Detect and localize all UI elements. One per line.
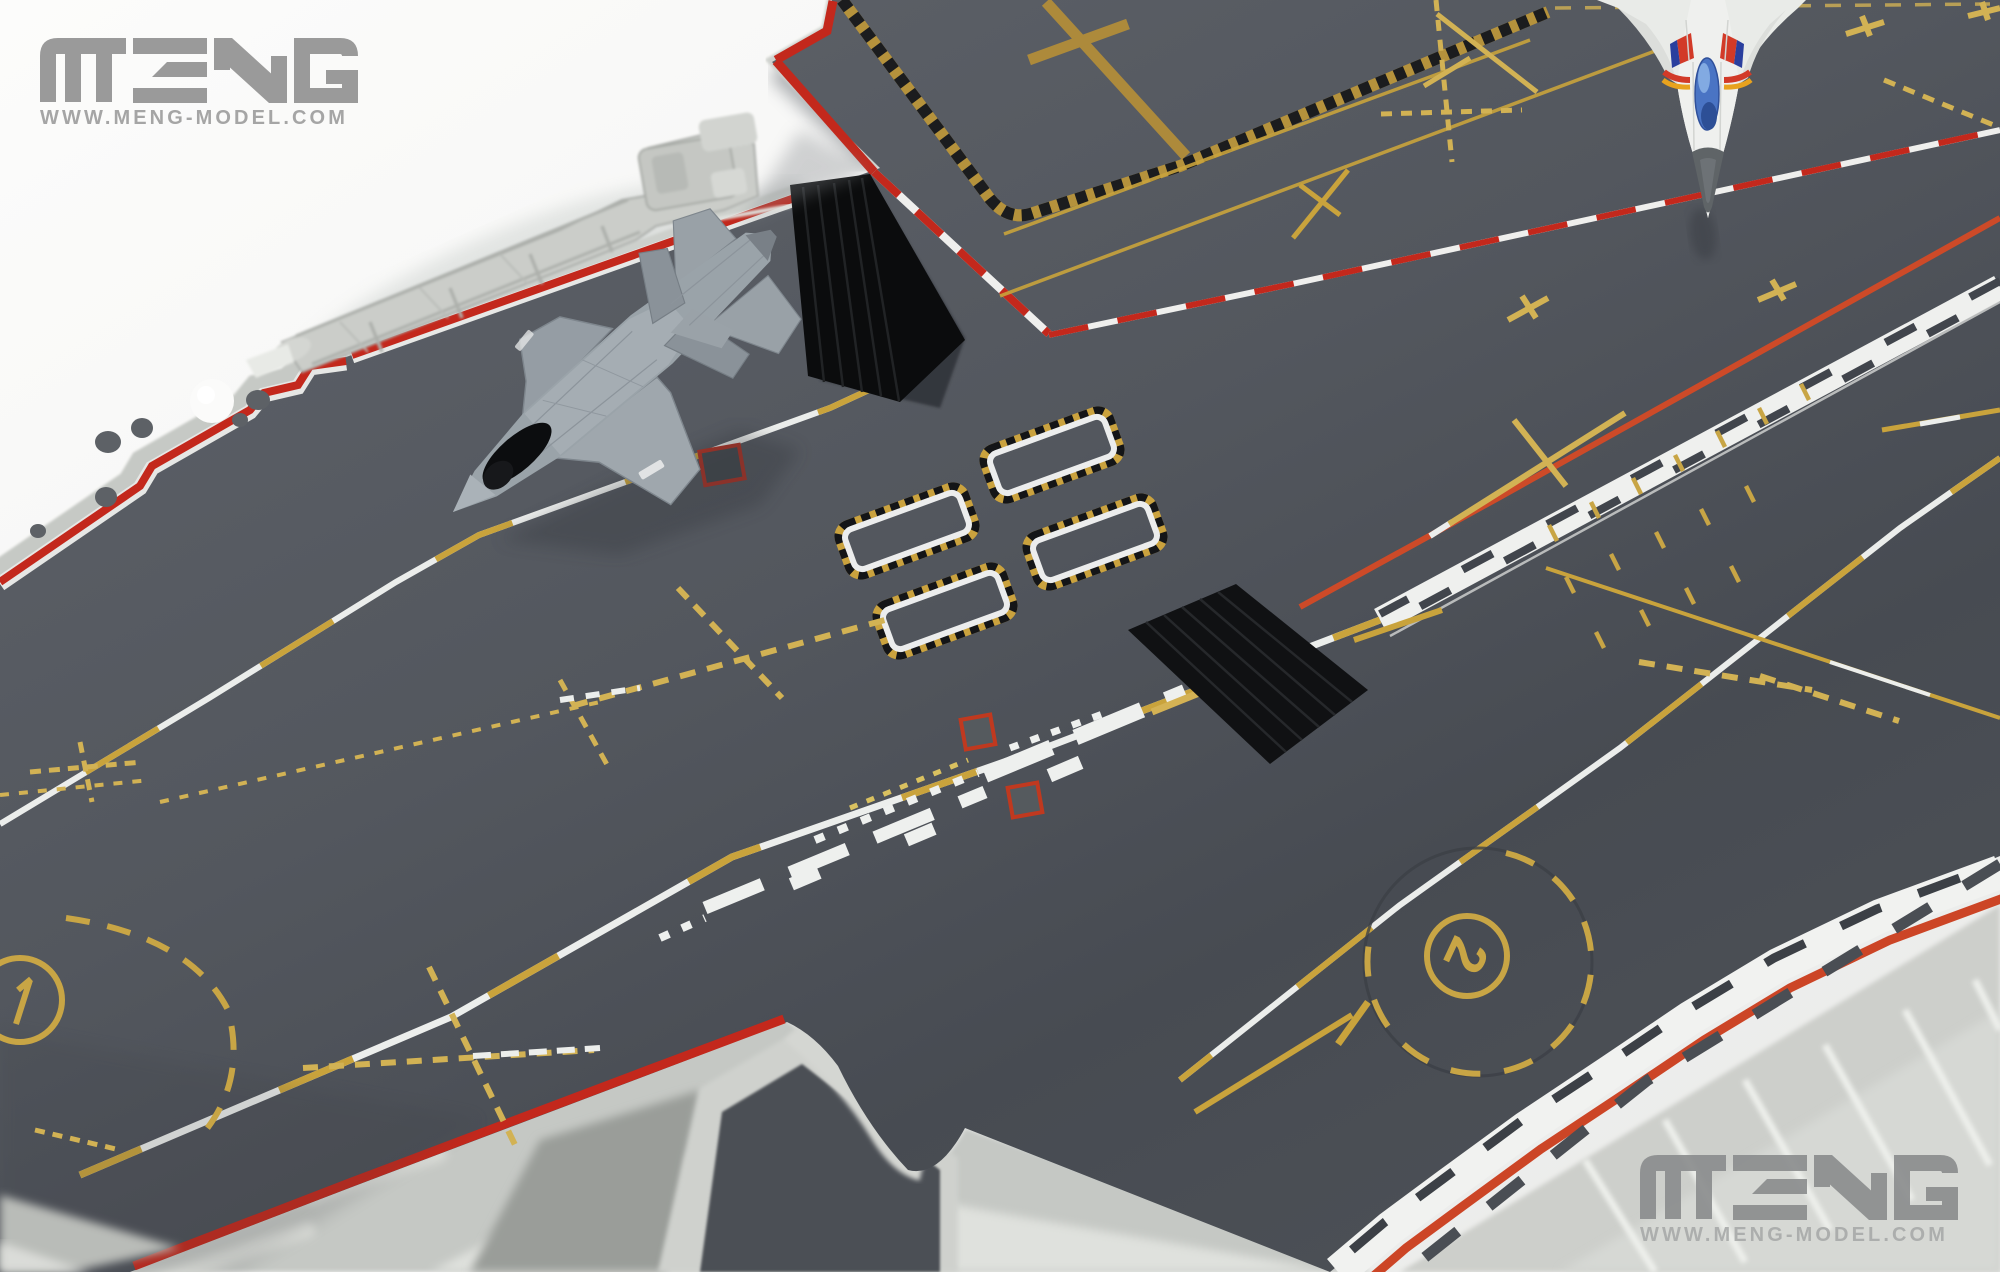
- svg-text:WWW.MENG-MODEL.COM: WWW.MENG-MODEL.COM: [1640, 1224, 1948, 1246]
- svg-text:WWW.MENG-MODEL.COM: WWW.MENG-MODEL.COM: [40, 107, 348, 129]
